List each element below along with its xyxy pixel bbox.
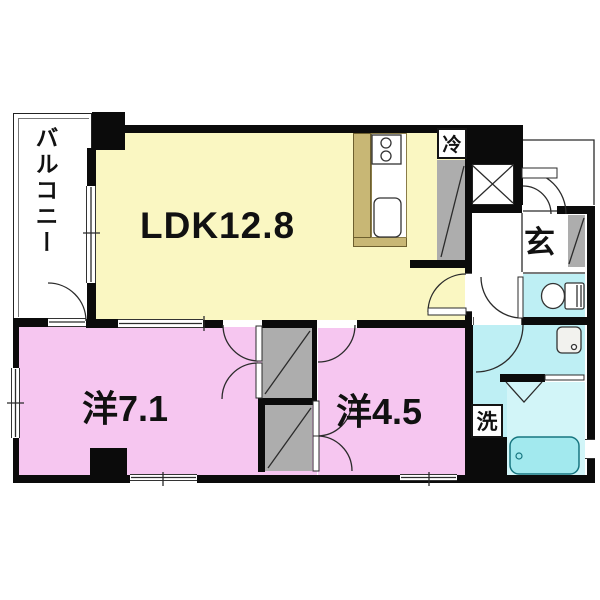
door-arc-ldk <box>428 274 466 312</box>
door-arc-closet1 <box>222 363 258 399</box>
washbasin <box>557 327 581 353</box>
western1-label: 洋7.1 <box>82 380 168 432</box>
washer-box: 洗 <box>471 404 503 438</box>
door-arc-toilet <box>481 277 522 318</box>
western2-label: 洋4.5 <box>336 383 422 435</box>
stove-burner <box>381 151 391 161</box>
diagonal-closet-bottom <box>268 408 311 468</box>
kitchen-sink <box>374 198 401 237</box>
stove-burner <box>381 138 391 148</box>
door-arc-western1 <box>223 325 258 361</box>
door-panel-toilet <box>518 277 523 318</box>
diagonal-shoe-cabinet <box>569 218 584 264</box>
bathtub <box>510 437 579 474</box>
plan-linework <box>0 0 600 600</box>
bath-folding-door <box>506 382 542 402</box>
door-arc-western2 <box>318 325 355 362</box>
door-panel <box>313 436 319 471</box>
door-panel <box>256 326 262 361</box>
door-panel-entrance <box>522 168 557 178</box>
door-arc-closet2b <box>317 436 352 471</box>
refrigerator-box: 冷 <box>437 128 467 159</box>
door-panel <box>256 363 262 398</box>
diagonal-fridge-nook <box>441 166 464 257</box>
ldk-label: LDK12.8 <box>140 205 295 247</box>
door-panel <box>428 308 466 315</box>
door-arc-washroom <box>476 325 523 372</box>
washbasin-faucet <box>572 345 577 350</box>
door-panel <box>313 401 319 436</box>
door-arc-entrance-inner <box>523 186 551 214</box>
washer-label: 洗 <box>477 406 498 436</box>
bath-door-track <box>545 375 584 380</box>
diagonal-closet-top <box>265 331 310 394</box>
balcony-label: バルコニー <box>28 126 62 321</box>
entrance-label: 玄 <box>524 217 555 262</box>
toilet-bowl <box>542 284 565 309</box>
refrigerator-label: 冷 <box>442 130 461 157</box>
floor-plan: 冷 洗 バルコニー LDK12.8 洋7.1 洋4.5 玄 <box>0 0 600 600</box>
pipe-space-box <box>472 164 514 205</box>
